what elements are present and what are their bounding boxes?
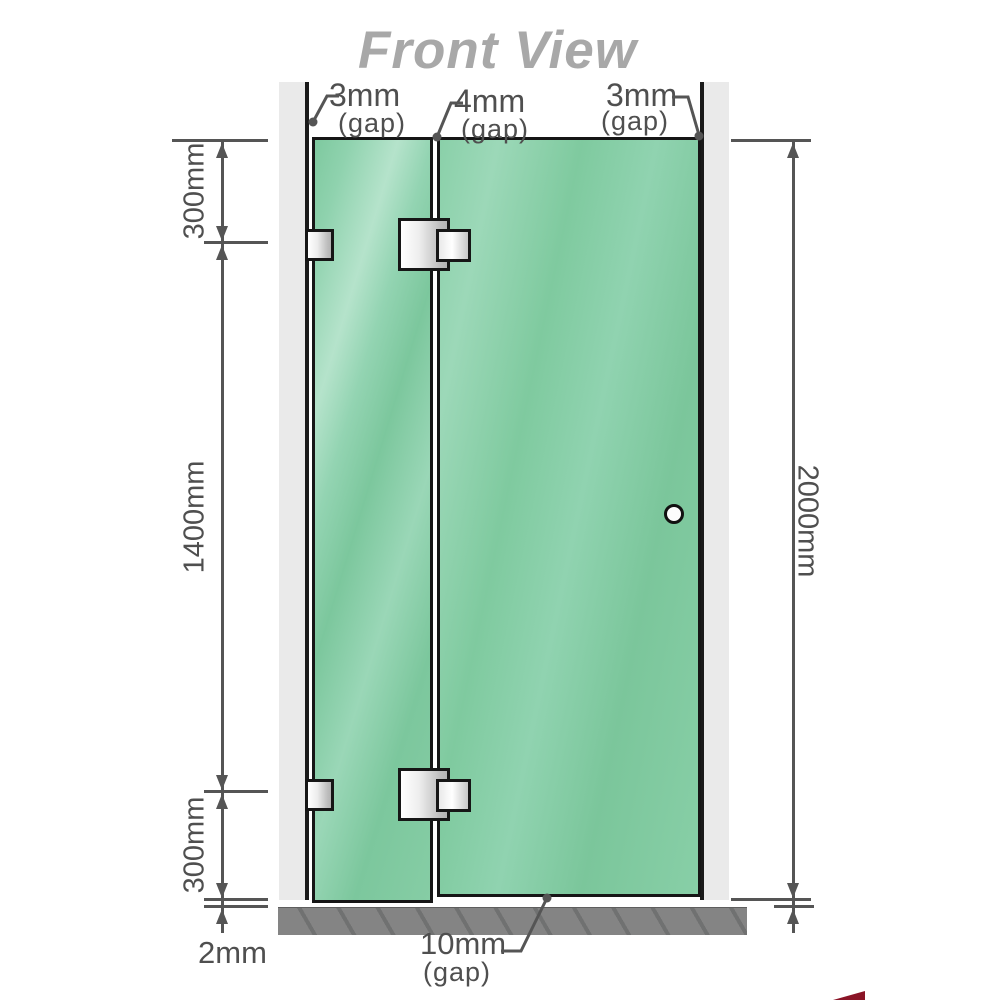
hinge-bottom-inner bbox=[436, 779, 471, 812]
dim-label-300-top: 300mm bbox=[181, 143, 210, 240]
gap-label-middle-value: 4mm bbox=[454, 85, 525, 117]
dim-arrow-up bbox=[216, 794, 228, 809]
gap-label-right-unit: (gap) bbox=[601, 108, 669, 135]
dim-tick-right-floor bbox=[774, 905, 814, 908]
gap-label-middle-unit: (gap) bbox=[461, 116, 529, 143]
gap-label-floor-unit: (gap) bbox=[423, 959, 491, 986]
dim-arrow-up bbox=[787, 909, 799, 924]
dim-tick-left-hinge-bottom bbox=[204, 790, 268, 793]
dim-arrow-up bbox=[216, 245, 228, 260]
dim-arrow-up bbox=[216, 909, 228, 924]
wall-bracket-bottom bbox=[305, 779, 334, 811]
dim-arrow-down bbox=[216, 226, 228, 241]
dim-label-2mm: 2mm bbox=[198, 937, 267, 968]
dim-label-1400: 1400mm bbox=[181, 461, 210, 574]
dim-arrow-down bbox=[216, 775, 228, 790]
gap-label-left-unit: (gap) bbox=[338, 110, 406, 137]
dim-tick-left-floor bbox=[204, 905, 268, 908]
dim-arrow-up bbox=[216, 143, 228, 158]
dim-arrow-down bbox=[787, 883, 799, 898]
dim-tick-left-top bbox=[172, 139, 268, 142]
floor-base bbox=[278, 907, 747, 935]
right-wall bbox=[700, 82, 729, 900]
dim-label-300-bottom: 300mm bbox=[181, 797, 210, 894]
dim-arrow-down bbox=[216, 883, 228, 898]
dim-tick-left-hinge-top bbox=[204, 241, 268, 244]
gap-label-left-value: 3mm bbox=[329, 79, 400, 111]
leader-dot bbox=[309, 118, 318, 127]
diagram-title: Front View bbox=[358, 24, 637, 77]
dim-label-2000: 2000mm bbox=[793, 465, 822, 578]
door-handle bbox=[664, 504, 684, 524]
left-wall bbox=[279, 82, 309, 900]
wall-bracket-top bbox=[305, 229, 334, 261]
logo-fragment bbox=[833, 991, 865, 1000]
dim-arrow-up bbox=[787, 143, 799, 158]
dim-tick-right-glass-bottom bbox=[731, 898, 811, 901]
dim-tick-right-top bbox=[731, 139, 811, 142]
gap-label-floor-value: 10mm bbox=[420, 928, 506, 959]
hinge-top-inner bbox=[436, 229, 471, 262]
front-view-diagram: Front View 300mm 1400mm 300mm 2000mm 2mm… bbox=[0, 0, 1000, 1000]
dim-tick-left-glass-bottom bbox=[204, 898, 268, 901]
glass-door-panel bbox=[437, 137, 701, 897]
